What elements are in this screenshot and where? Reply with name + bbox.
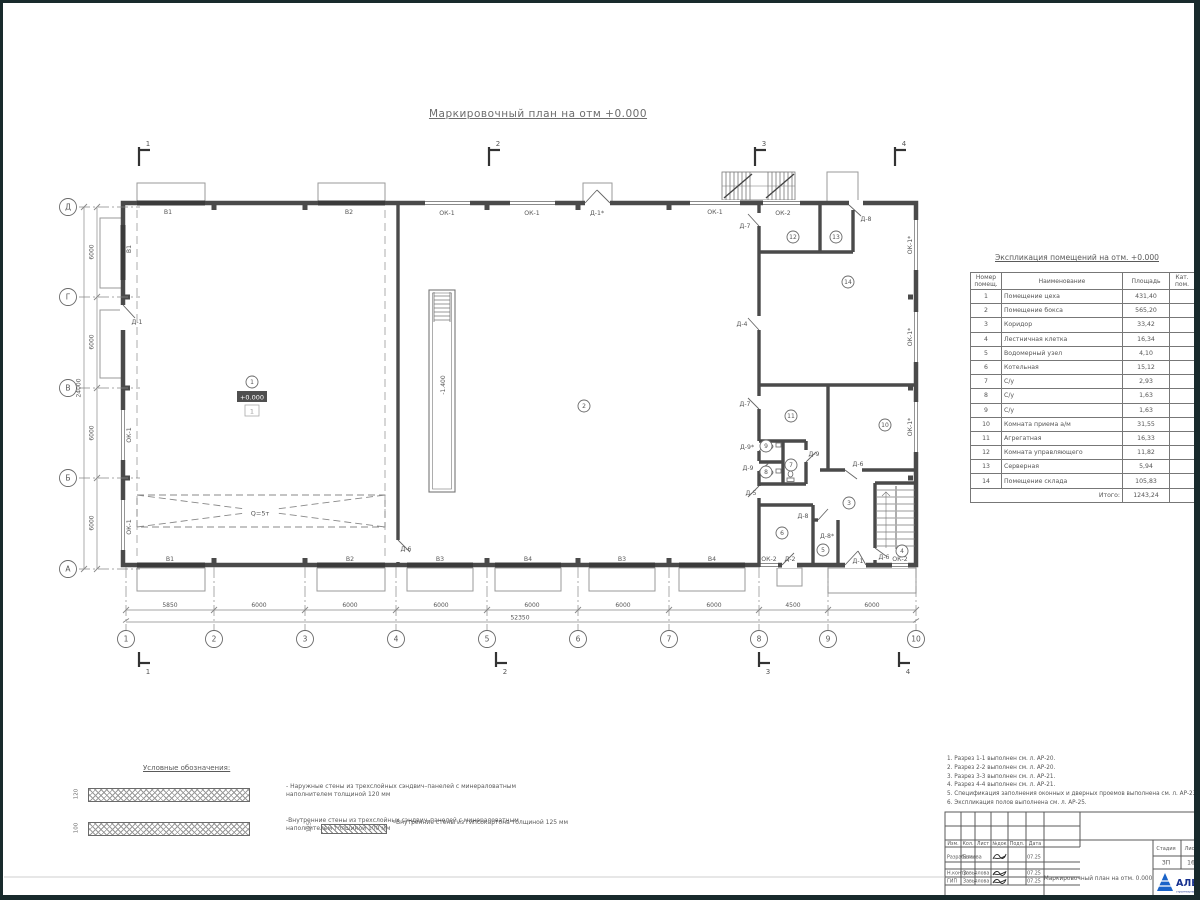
room-number: 7 <box>789 462 793 469</box>
dim-value: 6000 <box>89 244 96 259</box>
entrance-stairs <box>722 172 795 200</box>
note-item: 6. Экспликация полов выполнена см. л. АР… <box>947 799 1194 808</box>
schedule-cell: 15,12 <box>1123 360 1170 374</box>
stamp-header: Кол. <box>963 841 974 847</box>
section-number: 3 <box>762 140 766 148</box>
schedule-cell: С/у <box>1002 375 1123 389</box>
room-number: 2 <box>582 403 586 410</box>
legend-dim-120: 120 <box>73 789 79 800</box>
schedule-cell <box>1170 389 1195 403</box>
stamp-sheet-label: Лист <box>1185 846 1194 852</box>
schedule-cell: 12 <box>971 446 1002 460</box>
opening-label: В1 <box>166 556 174 563</box>
dim-value: 6000 <box>89 425 96 440</box>
dim-value: 4500 <box>785 602 800 609</box>
opening-label: Д-8 <box>860 216 871 223</box>
grid-label-col: 5 <box>485 635 490 644</box>
schedule-row: 9С/у1,63 <box>971 403 1195 417</box>
schedule-table: Номер помещ. Наименование Площадь Кат. п… <box>970 272 1194 503</box>
grid-label-col: 6 <box>576 635 581 644</box>
schedule-cell: 3 <box>971 318 1002 332</box>
opening-label: Д-9* <box>740 444 754 451</box>
stamp-header: Дата <box>1029 841 1041 847</box>
stamp-header: №док <box>992 841 1006 847</box>
stamp-sheet-value: 16 <box>1187 860 1194 867</box>
drawing-sheet: ДГВБА12345678910585060006000600060006000… <box>3 3 1194 895</box>
schedule-cell: Коридор <box>1002 318 1123 332</box>
opening-label: ОК-2 <box>892 556 907 563</box>
room-number: 14 <box>844 279 852 286</box>
room-number: 8 <box>764 469 768 476</box>
room-number: 5 <box>821 547 825 554</box>
opening-label: Д-7 <box>739 223 750 230</box>
section-number: 2 <box>503 668 507 676</box>
room-number: 11 <box>787 413 795 420</box>
dim-value: 6000 <box>864 602 879 609</box>
grid-label-row: Д <box>65 203 71 212</box>
schedule-cell: 565,20 <box>1123 304 1170 318</box>
stamp-stage-label: Стадия <box>1156 846 1175 852</box>
dim-value: 5850 <box>162 602 177 609</box>
opening-label: В2 <box>345 209 353 216</box>
floor-type-mark: 1 <box>250 408 254 416</box>
section-number: 3 <box>766 668 770 676</box>
schedule-row: 12Комната управляющего11,82 <box>971 446 1195 460</box>
schedule-cell <box>1170 431 1195 445</box>
opening-label: Д-8* <box>820 533 834 540</box>
legend-title: Условные обозначения: <box>143 764 230 772</box>
logo-subtext: строительная компания <box>1176 891 1194 894</box>
opening-label: ОК-1* <box>907 418 914 437</box>
stamp-name: Быкова <box>963 855 982 861</box>
opening-label: Д-6 <box>400 546 411 553</box>
page-title: Маркировочный план на отм +0.000 <box>420 108 656 120</box>
schedule-row: 13Серверная5,94 <box>971 460 1195 474</box>
schedule-title: Экспликация помещений на отм. +0.000 <box>970 253 1184 263</box>
grid-label-col: 8 <box>757 635 762 644</box>
legend-dim-125: 125 <box>306 822 312 833</box>
section-number: 4 <box>902 140 907 148</box>
schedule-row: 10Комната приема а/м31,55 <box>971 417 1195 431</box>
schedule-cell: 8 <box>971 389 1002 403</box>
wall-openings <box>120 190 919 568</box>
schedule-cell: С/у <box>1002 389 1123 403</box>
schedule-cell: 16,33 <box>1123 431 1170 445</box>
schedule-row: 3Коридор33,42 <box>971 318 1195 332</box>
note-item: 2. Разрез 2-2 выполнен см. л. АР-20. <box>947 764 1194 773</box>
schedule-cell <box>1170 375 1195 389</box>
schedule-cell: 105,83 <box>1123 474 1170 488</box>
schedule-cell: Помещение цеха <box>1002 290 1123 304</box>
schedule-cell: 7 <box>971 375 1002 389</box>
dim-value: 6000 <box>342 602 357 609</box>
schedule-cell <box>1170 403 1195 417</box>
note-item: 1. Разрез 1-1 выполнен см. л. АР-20. <box>947 755 1194 764</box>
schedule-header-cat: Кат. пом. <box>1170 273 1195 290</box>
opening-label: ОК-2 <box>761 556 776 563</box>
opening-label: ОК-2 <box>775 210 790 217</box>
stamp-header: Лист <box>977 841 989 847</box>
opening-label: В3 <box>436 556 444 563</box>
stamp-header: Изм. <box>947 841 958 847</box>
stamp-role: ГИП <box>947 879 958 885</box>
room-number: 10 <box>881 422 889 429</box>
section-number: 1 <box>146 140 150 148</box>
opening-label: В2 <box>346 556 354 563</box>
opening-label: В4 <box>708 556 716 563</box>
stamp-name: Завьялова <box>963 871 989 877</box>
room-number: 6 <box>780 530 784 537</box>
opening-label: Д-9 <box>808 451 819 458</box>
schedule-total-cell: Итого: <box>971 488 1123 502</box>
schedule-cell <box>1170 474 1195 488</box>
logo-icon <box>1157 873 1173 891</box>
dim-value: 6000 <box>251 602 266 609</box>
dim-value: 6000 <box>524 602 539 609</box>
schedule-cell: Водомерный узел <box>1002 346 1123 360</box>
legend-symbol-gypsum-wall <box>321 824 387 834</box>
opening-label: Д-9 <box>742 465 753 472</box>
schedule-cell <box>1170 460 1195 474</box>
schedule-total-cell: 1243,24 <box>1123 488 1170 502</box>
schedule-cell <box>1170 290 1195 304</box>
opening-label: Д-4 <box>736 321 747 328</box>
schedule-header-name: Наименование <box>1002 273 1123 290</box>
schedule-cell: 13 <box>971 460 1002 474</box>
schedule-cell: С/у <box>1002 403 1123 417</box>
opening-label: Д-8 <box>797 513 808 520</box>
schedule-row: 5Водомерный узел4,10 <box>971 346 1195 360</box>
schedule-cell: 2 <box>971 304 1002 318</box>
grid-label-row: Б <box>65 474 70 483</box>
grid-label-col: 1 <box>124 635 129 644</box>
room-number: 1 <box>250 379 254 386</box>
schedule-row: 2Помещение бокса565,20 <box>971 304 1195 318</box>
dim-value: 6000 <box>615 602 630 609</box>
grid-label-row: А <box>65 565 71 574</box>
opening-label: В1 <box>126 245 133 253</box>
legend-symbol-outer-wall <box>88 788 250 802</box>
stamp-date: 07.25 <box>1027 879 1041 885</box>
schedule-row: 11Агрегатная16,33 <box>971 431 1195 445</box>
schedule-cell: Комната управляющего <box>1002 446 1123 460</box>
stamp-stage-value: ЗП <box>1162 860 1170 867</box>
opening-label: В1 <box>164 209 172 216</box>
schedule-cell: 11 <box>971 431 1002 445</box>
schedule-cell: Комната приема а/м <box>1002 417 1123 431</box>
opening-label: Д-1 <box>852 558 863 565</box>
schedule-cell: 5,94 <box>1123 460 1170 474</box>
room-number: 9 <box>764 443 768 450</box>
schedule-cell <box>1170 360 1195 374</box>
opening-label: Д-7 <box>739 401 750 408</box>
schedule-cell: 4 <box>971 332 1002 346</box>
opening-label: Д-1* <box>590 210 604 217</box>
schedule-cell: 1 <box>971 290 1002 304</box>
grid-label-col: 2 <box>212 635 217 644</box>
schedule-cell: 10 <box>971 417 1002 431</box>
schedule-total-cell <box>1170 488 1195 502</box>
schedule-cell: 1,63 <box>1123 403 1170 417</box>
note-item: 3. Разрез 3-3 выполнен см. л. АР-21. <box>947 773 1194 782</box>
room-number: 12 <box>789 234 797 241</box>
schedule-cell: 1,63 <box>1123 389 1170 403</box>
opening-label: Д-6 <box>878 554 889 561</box>
pit-elevation: -1.400 <box>440 375 447 395</box>
opening-label: ОК-1 <box>126 427 133 442</box>
opening-label: В3 <box>618 556 626 563</box>
opening-label: ОК-1 <box>126 519 133 534</box>
stamp-date: 07.25 <box>1027 855 1041 861</box>
opening-label: ОК-1* <box>907 328 914 347</box>
legend-text-gypsum-wall: –Внутренние стены из гипсокартона толщин… <box>393 819 573 827</box>
grid-label-col: 3 <box>303 635 308 644</box>
schedule-cell: 31,55 <box>1123 417 1170 431</box>
schedule-cell: 14 <box>971 474 1002 488</box>
schedule-cell <box>1170 332 1195 346</box>
interior-walls <box>398 203 916 567</box>
grid-label-col: 7 <box>667 635 672 644</box>
legend-text-outer-wall: - Наружные стены из трехслойных сэндвич–… <box>286 783 526 799</box>
schedule-cell: 11,82 <box>1123 446 1170 460</box>
schedule-cell: Помещение склада <box>1002 474 1123 488</box>
schedule-cell <box>1170 318 1195 332</box>
opening-label: ОК-1 <box>439 210 454 217</box>
dim-value: 6000 <box>89 334 96 349</box>
section-number: 4 <box>906 668 911 676</box>
opening-label: В4 <box>524 556 532 563</box>
schedule-cell: 431,40 <box>1123 290 1170 304</box>
elevation-value: +0.000 <box>240 394 264 402</box>
opening-label: Д-6 <box>852 461 863 468</box>
dim-value: 6000 <box>706 602 721 609</box>
schedule-cell: 2,93 <box>1123 375 1170 389</box>
grid-label-col: 10 <box>911 635 921 644</box>
schedule-cell: 6 <box>971 360 1002 374</box>
schedule-row: 1Помещение цеха431,40 <box>971 290 1195 304</box>
schedule-cell <box>1170 417 1195 431</box>
grid-label-row: Г <box>66 293 71 302</box>
opening-label: ОК-1 <box>524 210 539 217</box>
schedule-row: 4Лестничная клетка16,34 <box>971 332 1195 346</box>
grid-label-row: В <box>65 384 70 393</box>
schedule-cell: 16,34 <box>1123 332 1170 346</box>
schedule-total-row: Итого:1243,24 <box>971 488 1195 502</box>
schedule-cell: Лестничная клетка <box>1002 332 1123 346</box>
schedule-cell: Котельная <box>1002 360 1123 374</box>
stamp-date: 07.25 <box>1027 871 1041 877</box>
crane-zone <box>137 210 385 560</box>
schedule-row: 7С/у2,93 <box>971 375 1195 389</box>
room-number: 3 <box>847 500 851 507</box>
schedule-row: 6Котельная15,12 <box>971 360 1195 374</box>
stamp-name: Завьялова <box>963 879 989 885</box>
schedule-cell <box>1170 304 1195 318</box>
grid-label-col: 9 <box>826 635 831 644</box>
grid-label-col: 4 <box>394 635 399 644</box>
schedule-cell: Серверная <box>1002 460 1123 474</box>
dim-total: 24000 <box>76 378 83 397</box>
schedule-cell: 33,42 <box>1123 318 1170 332</box>
opening-label: Д-5 <box>745 490 756 497</box>
schedule-cell <box>1170 346 1195 360</box>
schedule-cell: 9 <box>971 403 1002 417</box>
dim-value: 6000 <box>89 515 96 530</box>
opening-label: ОК-1 <box>707 209 722 216</box>
schedule-cell: 5 <box>971 346 1002 360</box>
opening-label: Д-1 <box>131 319 142 326</box>
opening-label: Д-2 <box>784 556 795 563</box>
stairwell-stairs <box>877 486 915 549</box>
legend-dim-100: 100 <box>73 823 79 834</box>
room-schedule: Экспликация помещений на отм. +0.000 Ном… <box>970 253 1184 503</box>
note-item: 4. Разрез 4-4 выполнен см. л. АР-21. <box>947 781 1194 790</box>
schedule-cell: Помещение бокса <box>1002 304 1123 318</box>
schedule-header-num: Номер помещ. <box>971 273 1002 290</box>
schedule-row: 8С/у1,63 <box>971 389 1195 403</box>
schedule-cell <box>1170 446 1195 460</box>
dim-total: 52350 <box>510 615 529 622</box>
crane-capacity: Q=5т <box>251 510 270 518</box>
dim-value: 6000 <box>433 602 448 609</box>
notes-list: 1. Разрез 1-1 выполнен см. л. АР-20.2. Р… <box>947 755 1194 808</box>
schedule-row: 14Помещение склада105,83 <box>971 474 1195 488</box>
schedule-cell: Агрегатная <box>1002 431 1123 445</box>
section-number: 2 <box>496 140 500 148</box>
schedule-cell: 4,10 <box>1123 346 1170 360</box>
stamp-header: Подп. <box>1010 841 1025 847</box>
section-number: 1 <box>146 668 150 676</box>
note-item: 5. Спецификация заполнения оконных и две… <box>947 790 1194 799</box>
room-number: 13 <box>832 234 840 241</box>
opening-label: ОК-1* <box>907 236 914 255</box>
schedule-header-area: Площадь <box>1123 273 1170 290</box>
gates <box>123 203 745 565</box>
stamp-doc-title: Маркировочный план на отм. 0.000 <box>1044 875 1153 882</box>
room-number: 4 <box>900 548 904 555</box>
legend-symbol-inner-wall <box>88 822 250 836</box>
logo-text: АЛЬЯНС <box>1176 878 1194 889</box>
